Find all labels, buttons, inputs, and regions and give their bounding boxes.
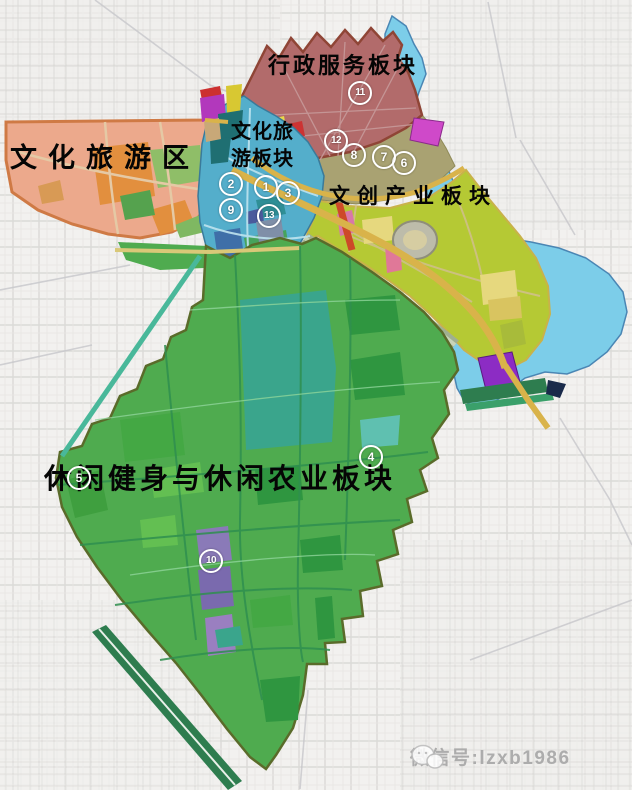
marker-13: 13 [257,204,281,228]
marker-9: 9 [219,198,243,222]
watermark: 微信号:lzxb1986 [410,743,571,770]
map-canvas [0,0,632,790]
wechat-icon [410,743,446,773]
marker-1: 1 [254,175,278,199]
marker-3: 3 [276,181,300,205]
marker-2: 2 [219,172,243,196]
label-tourism-board-line2: 游板块 [231,149,294,170]
marker-12: 12 [324,129,348,153]
marker-11: 11 [348,81,372,105]
label-tourism-board-line1: 文化旅 [231,122,294,143]
label-tourism-zone: 文化旅游区 [10,144,200,172]
marker-10: 10 [199,549,223,573]
marker-7: 7 [372,145,396,169]
label-admin-zone: 行政服务板块 [268,54,418,77]
label-creative-zone: 文创产业板块 [329,186,497,208]
planning-map: 1 2 3 4 5 6 7 8 9 10 11 12 13 行政服务板块 文化旅… [0,0,632,790]
marker-4: 4 [359,445,383,469]
marker-5: 5 [67,466,91,490]
label-leisure-zone: 休闲健身与休闲农业板块 [44,464,396,493]
